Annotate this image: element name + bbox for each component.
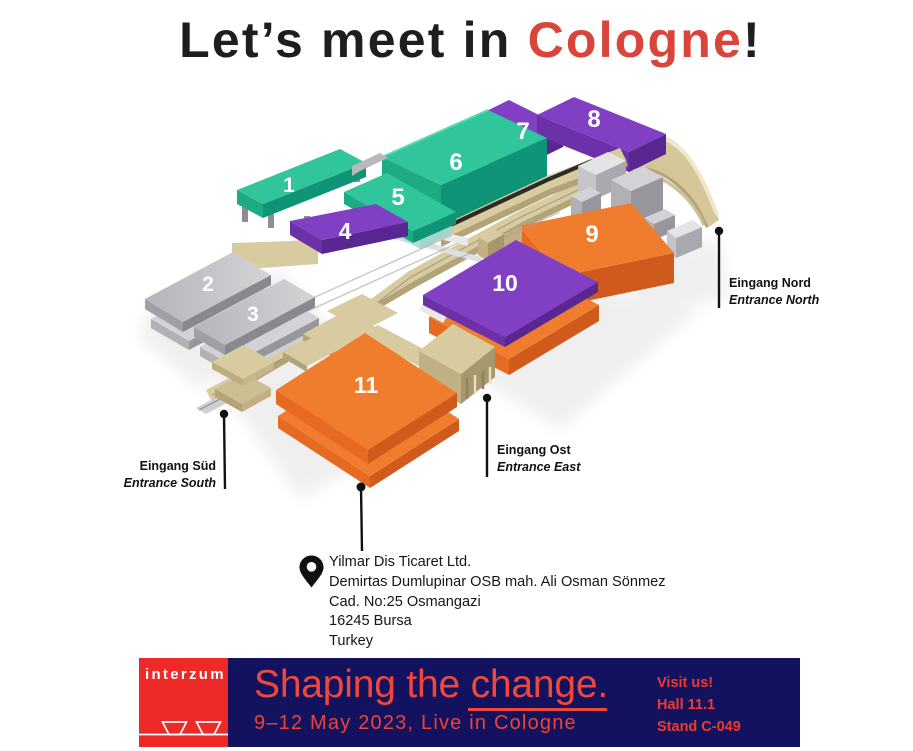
svg-text:2: 2 [202,273,214,296]
svg-text:4: 4 [339,218,352,244]
svg-text:11: 11 [354,372,379,398]
svg-text:1: 1 [283,174,295,197]
svg-text:5: 5 [391,184,404,211]
svg-text:10: 10 [492,270,518,296]
svg-text:3: 3 [247,303,259,326]
svg-text:6: 6 [449,149,462,176]
svg-text:7: 7 [516,118,529,145]
svg-text:8: 8 [587,106,600,133]
svg-text:9: 9 [585,221,598,248]
